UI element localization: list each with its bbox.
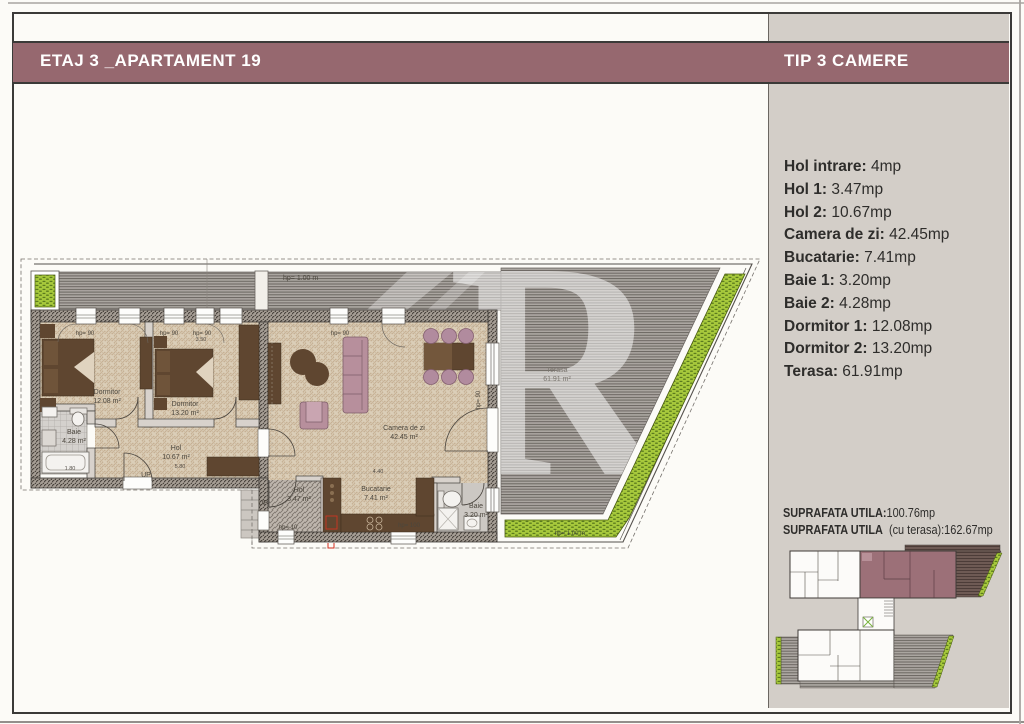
svg-text:hp= 90: hp= 90 [160,331,179,337]
svg-text:Hol: Hol [294,487,305,494]
svg-text:Dormitor: Dormitor [172,401,200,408]
svg-text:Baie: Baie [67,429,81,436]
svg-text:3.50: 3.50 [196,337,207,343]
svg-text:3.20 m²: 3.20 m² [464,512,488,519]
svg-text:UP: UP [258,500,268,507]
svg-text:UP: UP [141,472,151,479]
svg-text:12.08 m²: 12.08 m² [93,398,121,405]
svg-text:hp= 10: hp= 10 [279,525,298,531]
svg-text:Terasa: Terasa [546,367,567,374]
svg-text:hp= 90: hp= 90 [331,331,350,337]
svg-text:Camera de zi: Camera de zi [383,425,425,432]
svg-text:Baie: Baie [469,503,483,510]
svg-text:5.80: 5.80 [175,464,186,470]
svg-text:4.40: 4.40 [373,469,384,475]
svg-text:7.41 m²: 7.41 m² [364,495,388,502]
svg-text:10.67 m²: 10.67 m² [162,454,190,461]
svg-text:hp= 90: hp= 90 [76,331,95,337]
svg-text:Hol: Hol [171,445,182,452]
svg-text:1.80: 1.80 [65,466,76,472]
svg-text:13.20 m²: 13.20 m² [171,410,199,417]
svg-text:Bucatarie: Bucatarie [361,486,391,493]
svg-text:hp= 1.00 m: hp= 1.00 m [283,275,318,282]
svg-text:hp= 90: hp= 90 [476,390,482,409]
svg-text:hp= 1.00 m: hp= 1.00 m [555,531,585,537]
svg-text:4.28 m²: 4.28 m² [62,438,86,445]
svg-text:3.47 m²: 3.47 m² [287,496,311,503]
svg-text:42.45 m²: 42.45 m² [390,434,418,441]
svg-text:Dormitor: Dormitor [94,389,122,396]
svg-text:61.91 m²: 61.91 m² [543,376,571,383]
svg-text:hp= 100: hp= 100 [398,523,421,529]
